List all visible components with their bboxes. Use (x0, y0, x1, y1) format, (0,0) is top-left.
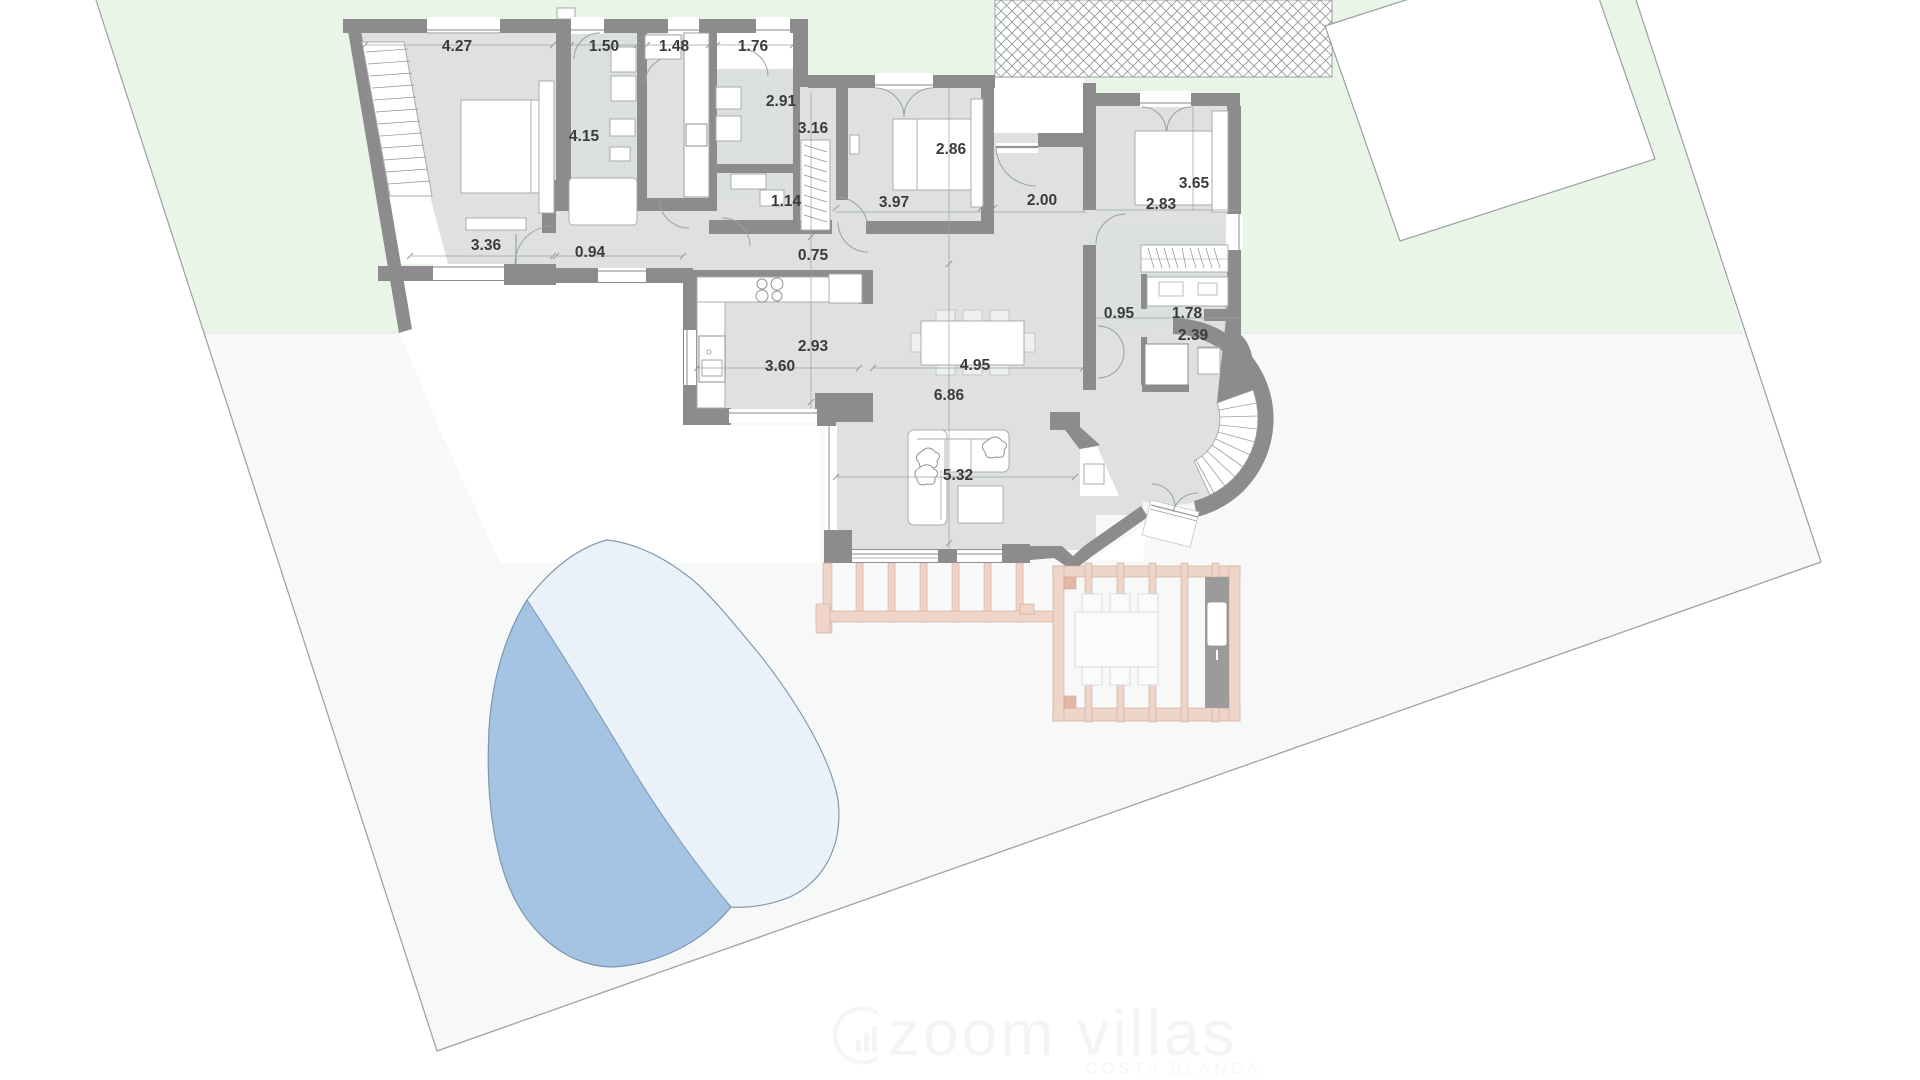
svg-text:4.27: 4.27 (442, 38, 472, 55)
svg-text:5.32: 5.32 (943, 467, 973, 484)
svg-text:3.16: 3.16 (798, 120, 829, 137)
svg-text:3.36: 3.36 (471, 237, 502, 254)
svg-text:COSTA BLANCA: COSTA BLANCA (1085, 1059, 1262, 1078)
svg-text:2.91: 2.91 (766, 93, 797, 110)
svg-text:0.75: 0.75 (798, 247, 829, 264)
svg-text:4.15: 4.15 (569, 128, 600, 145)
svg-text:2.00: 2.00 (1027, 192, 1057, 209)
svg-text:2.39: 2.39 (1178, 327, 1209, 344)
svg-text:6.86: 6.86 (934, 387, 965, 404)
svg-text:3.65: 3.65 (1179, 175, 1210, 192)
svg-text:1.76: 1.76 (738, 38, 769, 55)
svg-text:0.94: 0.94 (575, 244, 606, 261)
svg-text:1.14: 1.14 (771, 193, 802, 210)
svg-text:2.83: 2.83 (1146, 196, 1177, 213)
svg-text:1.48: 1.48 (659, 38, 690, 55)
svg-text:1.50: 1.50 (589, 38, 619, 55)
svg-text:3.60: 3.60 (765, 358, 795, 375)
svg-text:0.95: 0.95 (1104, 305, 1135, 322)
svg-text:3.97: 3.97 (879, 194, 909, 211)
svg-text:2.93: 2.93 (798, 338, 829, 355)
svg-text:4.95: 4.95 (960, 357, 991, 374)
svg-text:1.78: 1.78 (1172, 305, 1203, 322)
svg-text:2.86: 2.86 (936, 141, 967, 158)
